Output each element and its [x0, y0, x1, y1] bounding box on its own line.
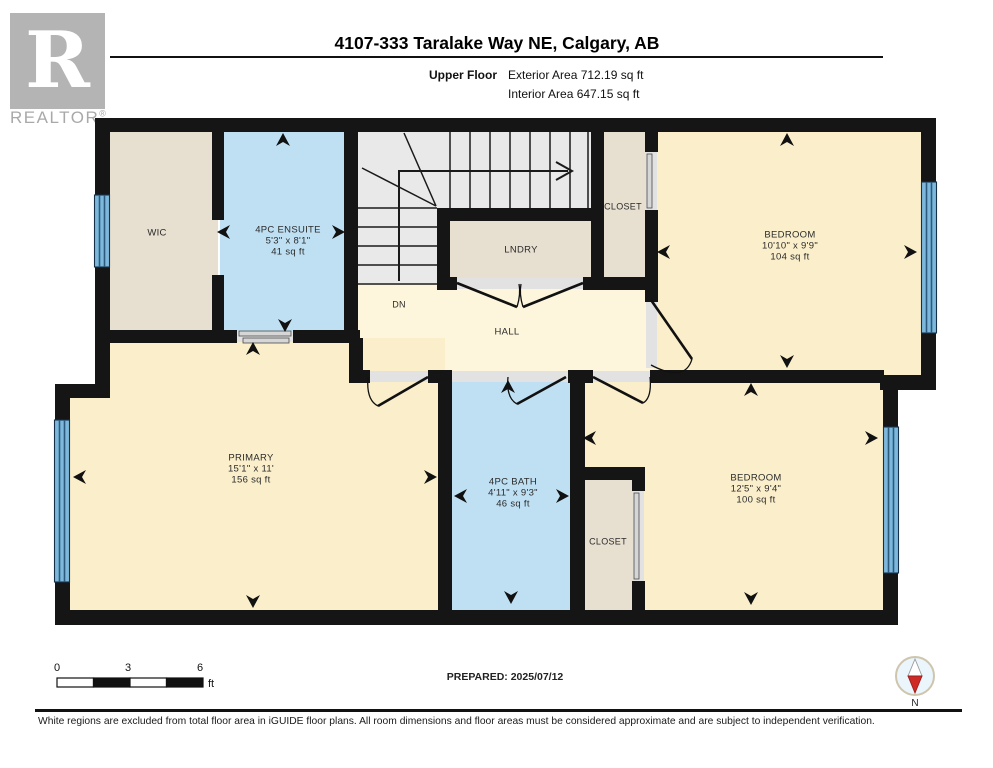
label-stairs-down: DN: [392, 300, 406, 311]
scale-tick-0: 0: [54, 662, 60, 674]
label-bedroom-top-name: BEDROOM: [762, 230, 818, 241]
label-wic-name: WIC: [147, 228, 166, 239]
label-bath-name: 4PC BATH: [488, 477, 538, 488]
ensuite-sliding-door: [239, 331, 291, 336]
label-bath: 4PC BATH 4'11" x 9'3" 46 sq ft: [488, 477, 538, 510]
ensuite-sliding-door-panel2: [243, 338, 289, 343]
label-primary: PRIMARY 15'1" x 11' 156 sq ft: [228, 453, 274, 486]
label-ensuite-name: 4PC ENSUITE: [255, 225, 321, 236]
label-bedroom-bottom-area: 100 sq ft: [730, 495, 781, 506]
footer-divider: [35, 709, 962, 712]
label-ensuite-area: 41 sq ft: [255, 247, 321, 258]
prepared-date: PREPARED: 2025/07/12: [400, 671, 610, 683]
closet-bottom-sliding-door: [634, 493, 639, 579]
floorplan-page: R REALTOR® 4107-333 Taralake Way NE, Cal…: [0, 0, 993, 768]
compass-north-label: N: [911, 698, 918, 709]
label-bedroom-top: BEDROOM 10'10" x 9'9" 104 sq ft: [762, 230, 818, 263]
label-closet-top: CLOSET: [604, 202, 642, 213]
scale-tick-6: 6: [197, 662, 203, 674]
label-bedroom-bottom: BEDROOM 12'5" x 9'4" 100 sq ft: [730, 473, 781, 506]
label-hall-name: HALL: [495, 327, 520, 338]
window-bedroom-bottom-east: [884, 427, 899, 573]
label-dn: DN: [392, 300, 406, 311]
scale-unit: ft: [208, 678, 214, 690]
window-primary-west: [55, 420, 70, 582]
compass-icon: [896, 657, 934, 695]
floorplan-svg: [0, 0, 993, 768]
label-ensuite: 4PC ENSUITE 5'3" x 8'1" 41 sq ft: [255, 225, 321, 258]
label-laundry: LNDRY: [504, 245, 538, 256]
label-primary-name: PRIMARY: [228, 453, 274, 464]
label-hall: HALL: [495, 327, 520, 338]
label-laundry-name: LNDRY: [504, 245, 538, 256]
window-wic-west: [95, 195, 110, 267]
scale-bar: [57, 678, 203, 687]
scale-tick-3: 3: [125, 662, 131, 674]
label-bath-dims: 4'11" x 9'3": [488, 488, 538, 499]
label-bedroom-top-dims: 10'10" x 9'9": [762, 241, 818, 252]
room-primary-west: [63, 391, 163, 615]
label-primary-area: 156 sq ft: [228, 475, 274, 486]
label-bedroom-bottom-dims: 12'5" x 9'4": [730, 484, 781, 495]
label-ensuite-dims: 5'3" x 8'1": [255, 236, 321, 247]
label-bedroom-bottom-name: BEDROOM: [730, 473, 781, 484]
label-closet-top-name: CLOSET: [604, 202, 642, 213]
label-bedroom-top-area: 104 sq ft: [762, 252, 818, 263]
label-wic: WIC: [147, 228, 166, 239]
closet-top-sliding-door: [647, 154, 652, 208]
disclaimer-text: White regions are excluded from total fl…: [38, 716, 968, 727]
label-closet-bottom-name: CLOSET: [589, 537, 627, 548]
label-primary-dims: 15'1" x 11': [228, 464, 274, 475]
label-bath-area: 46 sq ft: [488, 499, 538, 510]
label-closet-bottom: CLOSET: [589, 537, 627, 548]
window-bedroom-top-east: [922, 182, 937, 333]
